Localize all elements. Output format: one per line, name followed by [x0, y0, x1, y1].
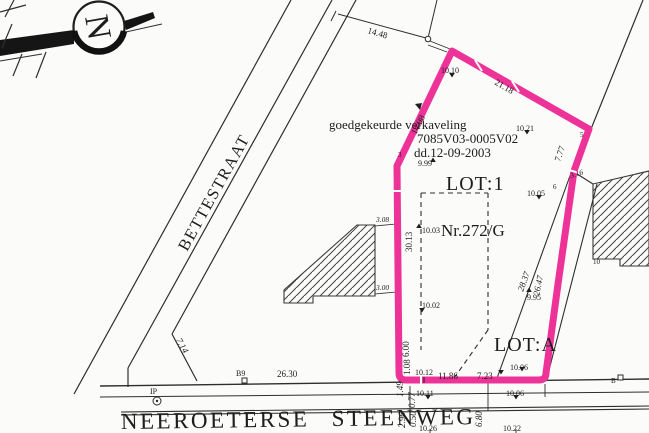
dim-1-49: 1.49 [395, 381, 405, 397]
building-right-hatched [593, 171, 649, 266]
north-arrow-compass: N [0, 0, 162, 78]
dim-7-14: 7.14 [174, 336, 191, 355]
tie-line-1 [430, 41, 450, 49]
spot-9-95: 9.95 [527, 293, 541, 302]
marker-b-square [618, 375, 623, 380]
survey-point-circle [425, 36, 431, 42]
point-6: 6 [553, 183, 557, 191]
dim-2-96: 2.96 [397, 412, 407, 428]
dim-21-18: 21.18 [493, 77, 516, 96]
cadastral-drawing: N BETTESTRAAT NEEROETERSE STEENWEG goedg… [0, 0, 649, 433]
neighbour-boundary-ne [591, 0, 643, 129]
lotA-label: LOT:A [494, 334, 557, 356]
lot1-parcel-number: Nr.272/G [441, 221, 505, 240]
lot1-label: LOT:1 [446, 173, 504, 195]
dim-11-86: 11.86 [438, 371, 458, 381]
street-edge-middle [128, 0, 332, 368]
spot-9-99: 9.99 [418, 159, 432, 168]
tie-3-08 [375, 224, 396, 226]
spot-10-05: 10.05 [527, 189, 545, 198]
marker-ip-inner-dot [156, 400, 158, 402]
marker-b-label: B [611, 377, 616, 385]
frontage-line [100, 379, 649, 386]
marker-b9-label: B9 [236, 369, 245, 378]
marker-ip-label: IP [150, 387, 158, 396]
spot-10-11: 10.11 [416, 389, 434, 398]
marker-b9-square [242, 378, 247, 383]
approval-line-1: goedgekeurde verkaveling [329, 117, 467, 132]
dim-0-50: 0.50 [408, 411, 418, 427]
dim-6-80: 6.80 [474, 411, 484, 427]
dim-30-13: 30.13 [404, 231, 414, 252]
point-3: 3 [398, 151, 402, 159]
building-left-hatched [284, 225, 375, 303]
end-tick [331, 11, 336, 21]
dim-7-77: 7.77 [552, 144, 567, 163]
frontage-line-2 [100, 392, 649, 397]
spot-10-22: 10.22 [503, 424, 521, 433]
dim-7-23: 7.23 [477, 371, 493, 381]
spot-10-06-upper: 10.06 [510, 363, 528, 372]
spot-10-02: 10.02 [422, 301, 440, 310]
dim-3-00: 3.00 [375, 283, 389, 292]
dim-6-00: 6.00 [401, 341, 411, 357]
dim-14-48: 14.48 [366, 25, 389, 40]
highlighted-parcel-outline [397, 51, 589, 380]
dim-26-30: 26.30 [277, 369, 298, 379]
spot-10-21: 10.21 [516, 124, 534, 133]
dim-3-16: 3.16 [568, 167, 584, 180]
boundary-lines [74, 0, 649, 433]
point-5: 5 [580, 131, 584, 139]
street-edge-west [74, 0, 291, 394]
spot-10-12: 10.12 [415, 368, 433, 377]
line-to-point [428, 0, 437, 38]
point-10: 10 [593, 258, 601, 266]
approval-line-3: dd.12-09-2003 [414, 145, 491, 160]
tie-line-2 [428, 45, 447, 52]
approval-line-2: 7085V03-0005V02 [417, 131, 518, 146]
dim-3-08: 3.08 [375, 215, 389, 224]
spot-10-03: 10.03 [422, 226, 440, 235]
spot-10-26: 10.26 [419, 424, 437, 433]
dim-1-08: 1.08 [402, 359, 412, 375]
tie-3-00 [375, 292, 396, 294]
street-name-bettestraat: BETTESTRAAT [174, 131, 254, 254]
survey-plan-sheet: N BETTESTRAAT NEEROETERSE STEENWEG goedg… [0, 0, 649, 433]
